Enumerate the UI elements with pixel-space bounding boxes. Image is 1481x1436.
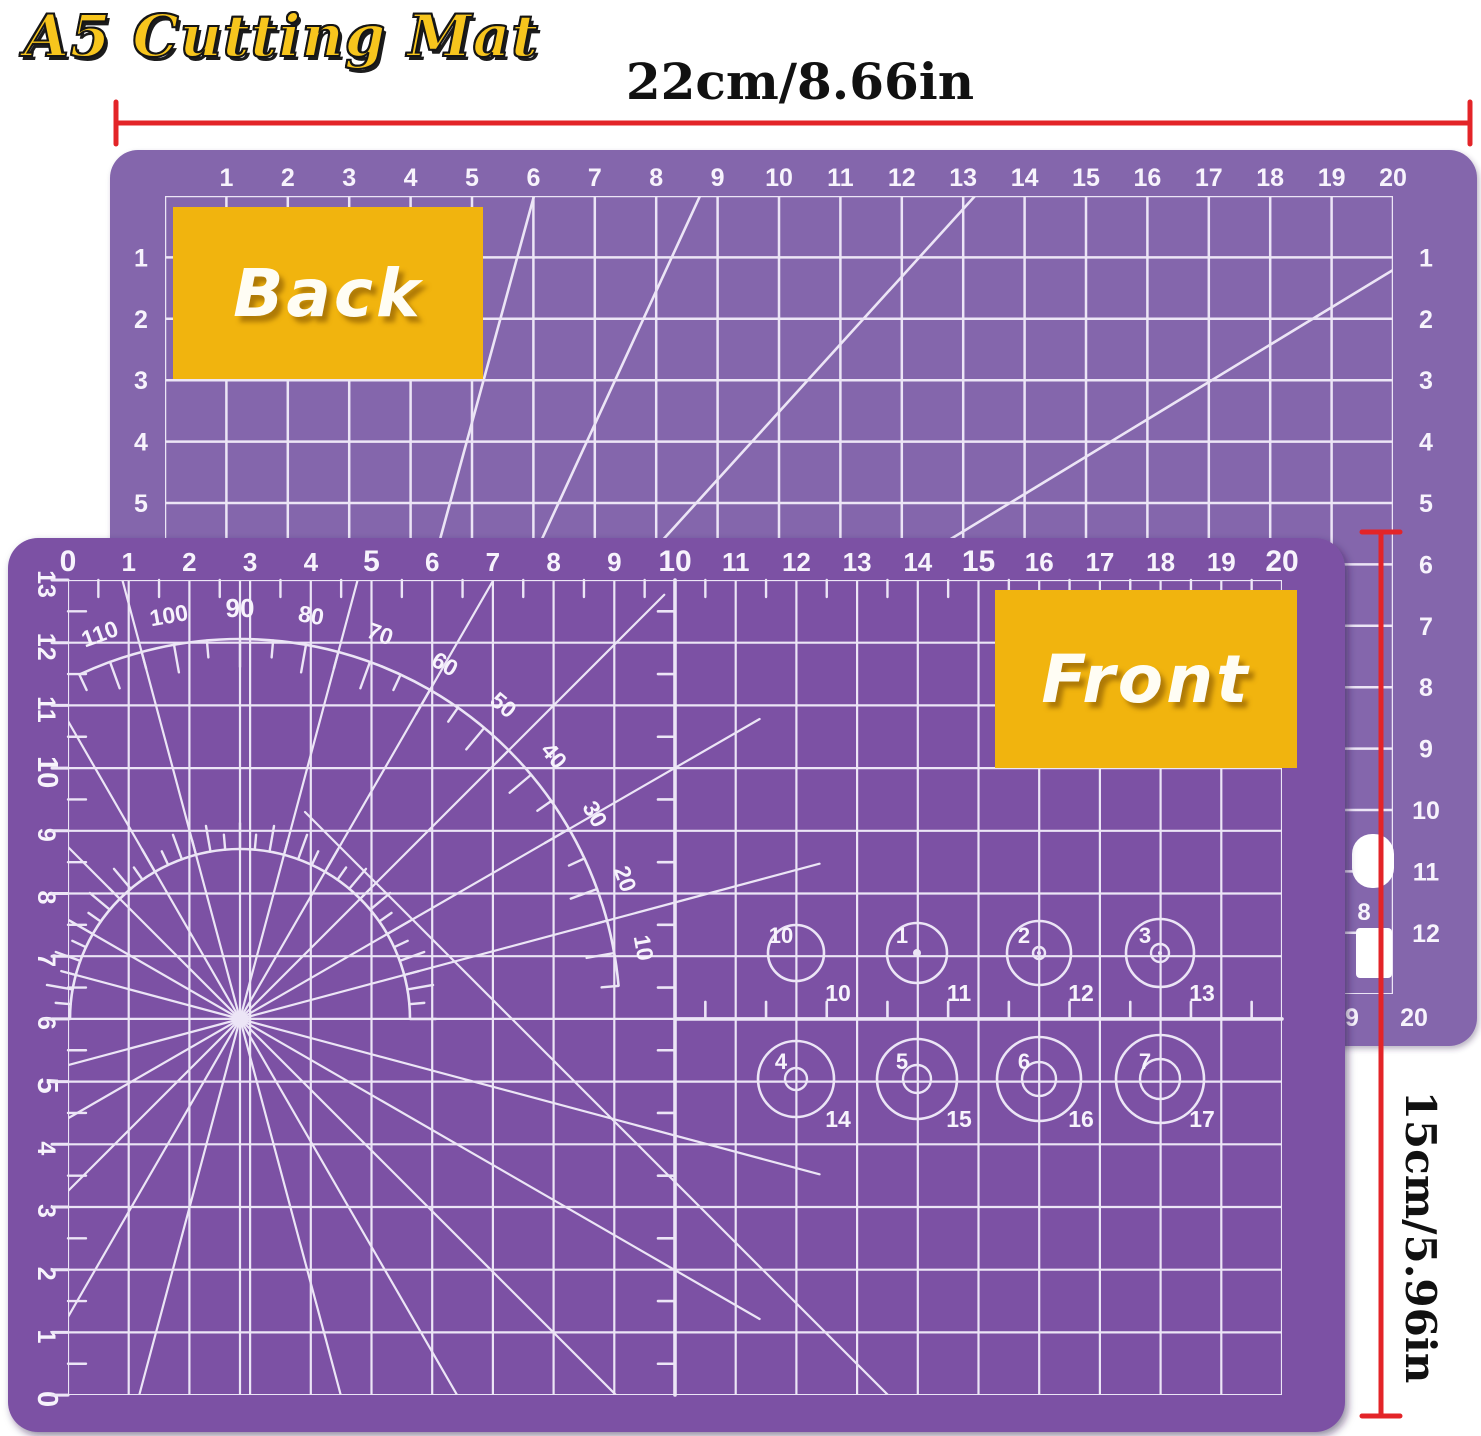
svg-text:10: 10: [825, 980, 851, 1006]
svg-text:19: 19: [1318, 164, 1346, 192]
svg-text:10: 10: [1412, 797, 1440, 825]
svg-text:12: 12: [888, 164, 916, 192]
back-side-label: Back: [173, 207, 483, 379]
svg-text:4: 4: [1419, 429, 1433, 457]
svg-text:16: 16: [1025, 547, 1054, 577]
svg-text:0: 0: [60, 545, 77, 578]
svg-text:0: 0: [31, 1391, 63, 1407]
svg-text:13: 13: [1189, 980, 1215, 1006]
svg-text:1: 1: [134, 244, 148, 272]
back-side-label-text: Back: [233, 255, 423, 332]
svg-text:6: 6: [1419, 551, 1433, 579]
svg-text:2: 2: [281, 164, 295, 192]
svg-text:1: 1: [896, 923, 908, 948]
svg-text:14: 14: [903, 547, 932, 577]
svg-text:20: 20: [1265, 545, 1298, 578]
svg-text:1: 1: [219, 164, 233, 192]
svg-text:4: 4: [775, 1049, 788, 1074]
svg-text:1: 1: [121, 547, 135, 577]
svg-text:17: 17: [1195, 164, 1223, 192]
svg-text:3: 3: [134, 367, 148, 395]
svg-text:5: 5: [363, 545, 380, 578]
svg-text:2: 2: [134, 306, 148, 334]
svg-text:3: 3: [342, 164, 356, 192]
svg-text:4: 4: [404, 164, 418, 192]
height-dimension-label: 15cm/5.96in: [1392, 987, 1448, 1436]
svg-text:11: 11: [722, 547, 750, 577]
back-mat-grid-number: 8: [1357, 899, 1370, 926]
svg-text:9: 9: [711, 164, 725, 192]
svg-text:12: 12: [782, 547, 811, 577]
svg-text:4: 4: [304, 547, 319, 577]
svg-text:15: 15: [946, 1106, 972, 1132]
svg-text:10: 10: [31, 756, 63, 788]
svg-text:9: 9: [1419, 736, 1433, 764]
svg-text:16: 16: [1068, 1106, 1094, 1132]
svg-text:3: 3: [1419, 367, 1433, 395]
svg-text:11: 11: [827, 164, 854, 192]
svg-text:2: 2: [1419, 306, 1433, 334]
width-dimension-label: 22cm/8.66in: [520, 52, 1080, 111]
svg-text:10: 10: [765, 164, 793, 192]
svg-text:10: 10: [658, 545, 691, 578]
svg-text:3: 3: [243, 547, 257, 577]
svg-text:12: 12: [1412, 920, 1440, 948]
svg-text:15: 15: [962, 545, 995, 578]
svg-text:17: 17: [1189, 1106, 1215, 1132]
svg-text:5: 5: [1419, 490, 1433, 518]
svg-text:5: 5: [465, 164, 479, 192]
svg-text:9: 9: [607, 547, 621, 577]
front-side-label: Front: [995, 590, 1297, 768]
front-mat: 0123456789101112131415161718192013121110…: [0, 419, 1345, 1436]
svg-text:6: 6: [1018, 1049, 1030, 1074]
svg-text:2: 2: [1018, 923, 1030, 948]
product-image: 1234567891011121314151617181920123451234…: [0, 0, 1481, 1436]
svg-text:80: 80: [296, 600, 326, 630]
svg-text:15: 15: [1072, 164, 1100, 192]
svg-text:13: 13: [843, 547, 872, 577]
svg-text:6: 6: [425, 547, 439, 577]
svg-text:12: 12: [32, 633, 60, 661]
svg-text:8: 8: [649, 164, 663, 192]
svg-text:3: 3: [1139, 923, 1151, 948]
svg-text:14: 14: [1011, 164, 1039, 192]
svg-text:6: 6: [526, 164, 540, 192]
svg-text:4: 4: [134, 429, 148, 457]
front-side-label-text: Front: [1041, 641, 1250, 718]
svg-text:19: 19: [1207, 547, 1236, 577]
svg-text:5: 5: [134, 490, 148, 518]
svg-text:13: 13: [32, 570, 60, 598]
svg-text:1: 1: [1419, 244, 1433, 272]
svg-text:7: 7: [486, 547, 500, 577]
svg-text:10: 10: [629, 933, 659, 963]
svg-text:14: 14: [825, 1106, 851, 1132]
svg-text:17: 17: [1085, 547, 1114, 577]
back-mat-square-hole: [1356, 928, 1392, 978]
svg-text:16: 16: [1133, 164, 1161, 192]
back-mat-hang-hole: [1352, 834, 1394, 888]
svg-text:8: 8: [1419, 674, 1433, 702]
svg-text:12: 12: [1068, 980, 1094, 1006]
svg-text:10: 10: [769, 923, 793, 948]
svg-text:7: 7: [1419, 613, 1433, 641]
svg-text:11: 11: [947, 980, 972, 1006]
svg-text:18: 18: [1256, 164, 1284, 192]
svg-text:5: 5: [896, 1049, 908, 1074]
svg-text:18: 18: [1146, 547, 1175, 577]
svg-text:2: 2: [182, 547, 196, 577]
svg-text:7: 7: [1139, 1049, 1151, 1074]
svg-text:7: 7: [588, 164, 602, 192]
svg-text:11: 11: [1413, 858, 1440, 886]
svg-text:8: 8: [546, 547, 560, 577]
svg-text:20: 20: [1379, 164, 1407, 192]
svg-text:5: 5: [31, 1078, 63, 1094]
svg-text:11: 11: [32, 696, 60, 723]
svg-text:13: 13: [949, 164, 977, 192]
svg-text:9: 9: [1345, 1004, 1359, 1032]
page-title: A5 Cutting Mat: [24, 2, 539, 70]
